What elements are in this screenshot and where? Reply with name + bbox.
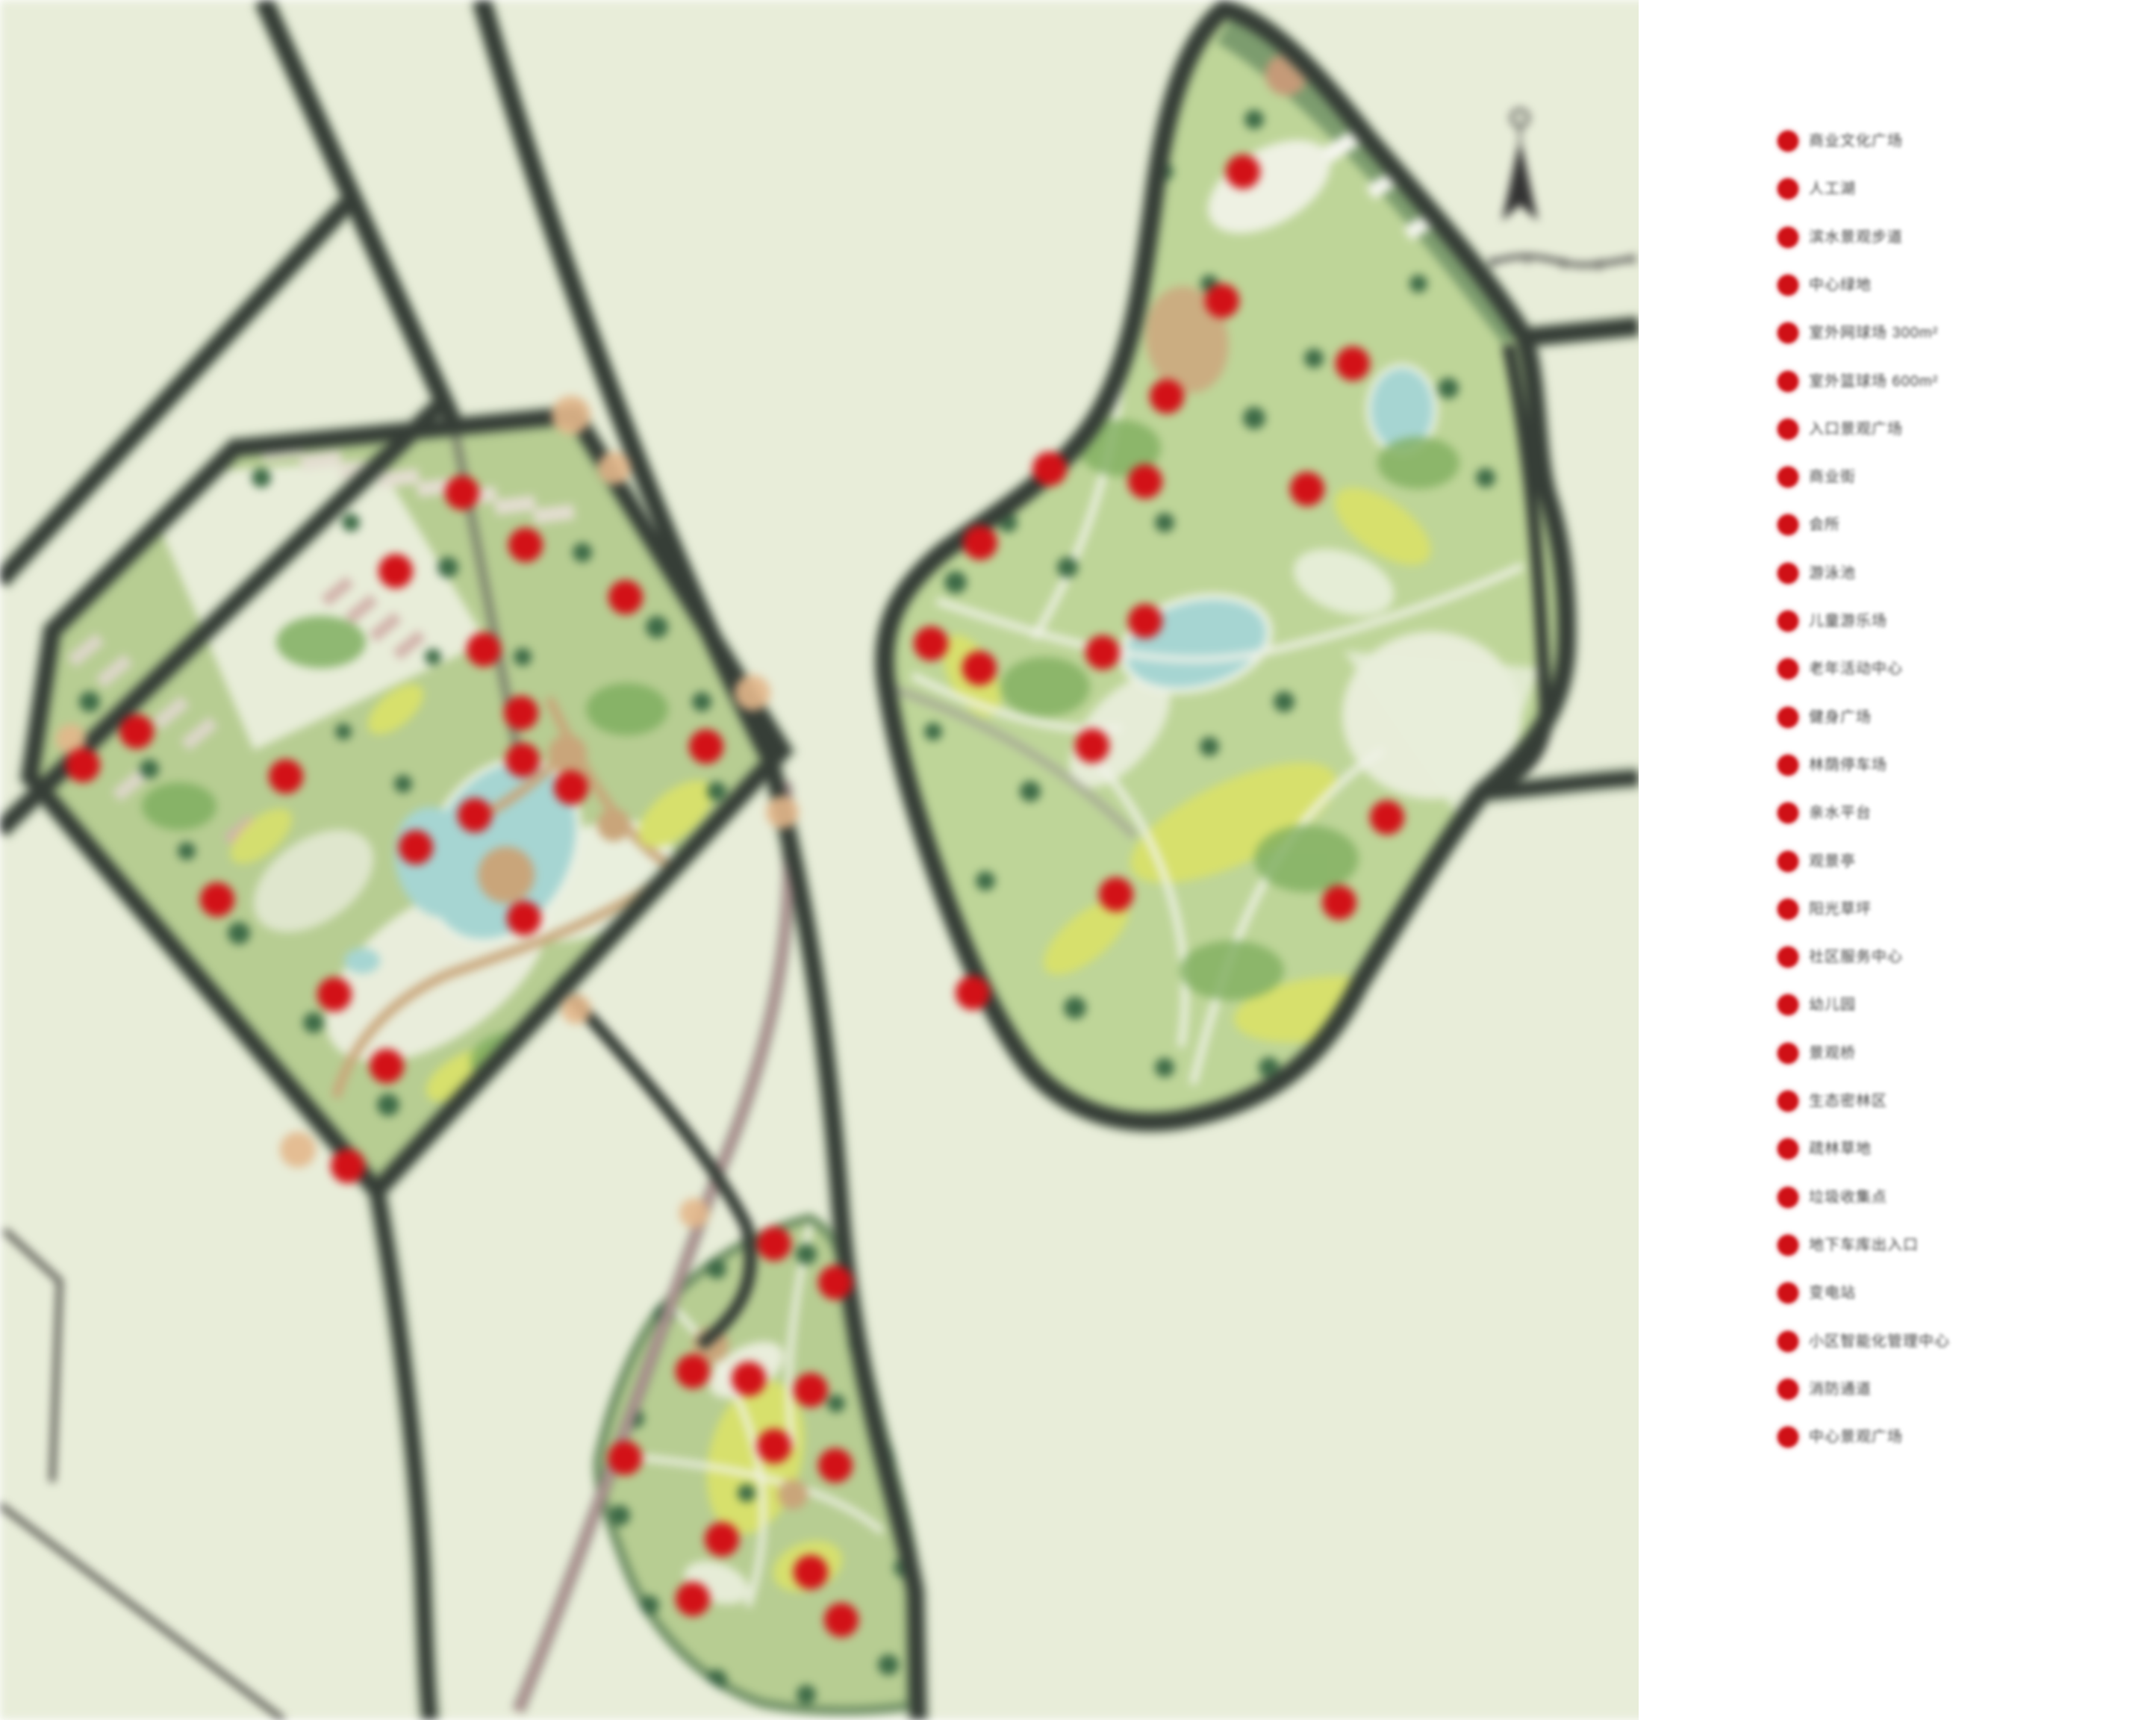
legend-item-label: 人工湖 <box>1809 181 1856 196</box>
legend-item: 变电站 <box>1778 1278 1856 1308</box>
legend-item-label: 会所 <box>1809 517 1840 532</box>
legend-item-label: 游泳池 <box>1809 566 1856 581</box>
legend-item-label: 地下车库出入口 <box>1809 1238 1919 1253</box>
map-marker <box>705 1522 739 1557</box>
legend-marker-icon <box>1778 178 1798 199</box>
legend-item-label: 社区服务中心 <box>1809 950 1903 965</box>
legend-item: 商业文化广场 <box>1778 126 1903 156</box>
legend-item: 疏林草地 <box>1778 1134 1872 1164</box>
legend-marker-icon <box>1778 371 1798 392</box>
legend-marker-icon <box>1778 658 1798 679</box>
map-marker <box>554 770 588 805</box>
legend-item: 人工湖 <box>1778 174 1856 204</box>
legend-marker-icon <box>1778 322 1798 343</box>
map-marker <box>824 1603 859 1637</box>
legend-item-label: 亲水平台 <box>1809 806 1872 820</box>
legend-item-label: 入口景观广场 <box>1809 422 1903 437</box>
map-marker <box>507 901 541 935</box>
map-marker <box>1032 452 1067 486</box>
map-marker <box>1322 885 1356 920</box>
map-marker <box>317 977 352 1012</box>
legend-item: 中心景观广场 <box>1778 1422 1903 1452</box>
legend-marker-icon <box>1778 1091 1798 1112</box>
map-marker <box>378 554 413 588</box>
legend-item: 滨水景观步道 <box>1778 222 1903 252</box>
legend-item: 生态密林区 <box>1778 1086 1887 1116</box>
legend-item-label: 室外篮球场 600m² <box>1809 374 1938 389</box>
legend-marker-icon <box>1778 467 1798 487</box>
legend-marker-icon <box>1778 1187 1798 1208</box>
map-marker <box>794 1373 828 1407</box>
legend-marker-icon <box>1778 275 1798 296</box>
legend-item: 儿童游乐场 <box>1778 606 1887 636</box>
legend-item-label: 疏林草地 <box>1809 1141 1872 1156</box>
legend-item: 商业街 <box>1778 462 1856 492</box>
map-marker <box>1099 877 1133 912</box>
map-marker <box>914 626 948 661</box>
map-marker <box>505 743 540 777</box>
legend-item-label: 中心绿地 <box>1809 278 1872 293</box>
legend-item-label: 阳光草坪 <box>1809 902 1872 917</box>
legend-marker-icon <box>1778 227 1798 248</box>
legend-item-label: 室外网球场 300m² <box>1809 325 1938 340</box>
map-marker <box>794 1555 828 1589</box>
legend-item-label: 中心景观广场 <box>1809 1430 1903 1445</box>
map-marker <box>119 714 154 749</box>
map-marker <box>504 696 538 730</box>
legend-item: 中心绿地 <box>1778 270 1872 300</box>
legend-marker-icon <box>1778 1235 1798 1256</box>
legend-item-label: 变电站 <box>1809 1286 1856 1300</box>
map-marker <box>1290 472 1324 506</box>
legend-item-label: 儿童游乐场 <box>1809 614 1887 629</box>
legend-panel: 商业文化广场人工湖滨水景观步道中心绿地室外网球场 300m²室外篮球场 600m… <box>1639 0 2156 1720</box>
legend-marker-icon <box>1778 514 1798 535</box>
map-marker <box>689 729 723 764</box>
legend-item: 会所 <box>1778 510 1840 540</box>
map-marker <box>732 1362 766 1396</box>
legend-item-label: 健身广场 <box>1809 710 1872 725</box>
legend-marker-icon <box>1778 755 1798 776</box>
legend-item: 老年活动中心 <box>1778 654 1903 684</box>
map-marker <box>370 1049 404 1083</box>
map-marker <box>331 1149 365 1183</box>
map-marker <box>1336 346 1370 381</box>
map-marker <box>445 476 479 510</box>
map-marker <box>508 528 543 562</box>
legend-item: 游泳池 <box>1778 558 1856 588</box>
legend-item: 消防通道 <box>1778 1374 1872 1404</box>
legend-marker-icon <box>1778 1283 1798 1303</box>
map-marker <box>963 526 997 560</box>
legend-marker-icon <box>1778 1379 1798 1400</box>
map-marker <box>608 1441 642 1475</box>
legend-marker-icon <box>1778 994 1798 1015</box>
legend-marker-icon <box>1778 803 1798 823</box>
legend-marker-icon <box>1778 851 1798 872</box>
map-marker <box>1226 155 1260 189</box>
map-marker <box>399 830 433 864</box>
legend-item-label: 林荫停车场 <box>1809 758 1887 773</box>
legend-marker-icon <box>1778 611 1798 632</box>
legend-item-label: 生态密林区 <box>1809 1094 1887 1109</box>
map-marker <box>676 1354 710 1389</box>
legend-item-label: 垃圾收集点 <box>1809 1190 1887 1205</box>
map-marker <box>608 580 643 614</box>
map-marker <box>818 1265 853 1300</box>
legend-marker-icon <box>1778 947 1798 967</box>
map-marker <box>1075 729 1109 763</box>
map-marker <box>1128 464 1162 499</box>
site-plan-screenshot: 商业文化广场人工湖滨水景观步道中心绿地室外网球场 300m²室外篮球场 600m… <box>0 0 2156 1720</box>
map-marker <box>676 1582 710 1616</box>
map-marker <box>818 1448 853 1483</box>
legend-marker-icon <box>1778 419 1798 440</box>
legend-item: 景观桥 <box>1778 1038 1856 1068</box>
map-marker <box>1128 604 1162 638</box>
map-marker <box>200 882 234 917</box>
legend-item-label: 滨水景观步道 <box>1809 230 1903 245</box>
legend-item: 入口景观广场 <box>1778 414 1903 444</box>
map-marker <box>467 632 501 667</box>
legend-item-label: 景观桥 <box>1809 1046 1856 1061</box>
legend-list: 商业文化广场人工湖滨水景观步道中心绿地室外网球场 300m²室外篮球场 600m… <box>1639 0 2156 1720</box>
legend-item-label: 观景亭 <box>1809 854 1856 869</box>
legend-marker-icon <box>1778 899 1798 920</box>
legend-item-label: 消防通道 <box>1809 1382 1872 1397</box>
legend-item: 垃圾收集点 <box>1778 1182 1887 1212</box>
map-marker <box>66 748 100 782</box>
map-marker <box>1085 635 1120 670</box>
legend-item-label: 老年活动中心 <box>1809 661 1903 676</box>
legend-item: 幼儿园 <box>1778 990 1856 1020</box>
legend-item: 观景亭 <box>1778 847 1856 876</box>
legend-item-label: 商业文化广场 <box>1809 134 1903 149</box>
map-marker <box>1150 379 1184 414</box>
map-marker <box>956 976 990 1010</box>
legend-item: 小区智能化管理中心 <box>1778 1327 1950 1356</box>
legend-marker-icon <box>1778 707 1798 728</box>
legend-item: 健身广场 <box>1778 702 1872 732</box>
legend-item-label: 商业街 <box>1809 470 1856 484</box>
map-marker <box>962 651 997 685</box>
legend-item: 亲水平台 <box>1778 798 1872 828</box>
legend-item-label: 小区智能化管理中心 <box>1809 1334 1950 1349</box>
legend-item: 地下车库出入口 <box>1778 1230 1919 1260</box>
legend-item: 室外篮球场 600m² <box>1778 367 1938 396</box>
map-marker <box>269 759 303 794</box>
legend-item: 室外网球场 300m² <box>1778 318 1938 348</box>
map-marker <box>1370 800 1404 835</box>
legend-item: 林荫停车场 <box>1778 750 1887 780</box>
map-marker <box>757 1429 791 1463</box>
map-marker <box>757 1227 791 1261</box>
legend-item: 社区服务中心 <box>1778 942 1903 972</box>
legend-item-label: 幼儿园 <box>1809 997 1856 1012</box>
legend-item: 阳光草坪 <box>1778 894 1872 924</box>
legend-marker-icon <box>1778 131 1798 152</box>
legend-marker-icon <box>1778 1427 1798 1448</box>
legend-marker-icon <box>1778 1043 1798 1064</box>
legend-marker-icon <box>1778 1138 1798 1159</box>
legend-marker-icon <box>1778 1331 1798 1352</box>
map-marker <box>1205 284 1239 318</box>
map-marker <box>458 798 492 832</box>
legend-marker-icon <box>1778 563 1798 584</box>
